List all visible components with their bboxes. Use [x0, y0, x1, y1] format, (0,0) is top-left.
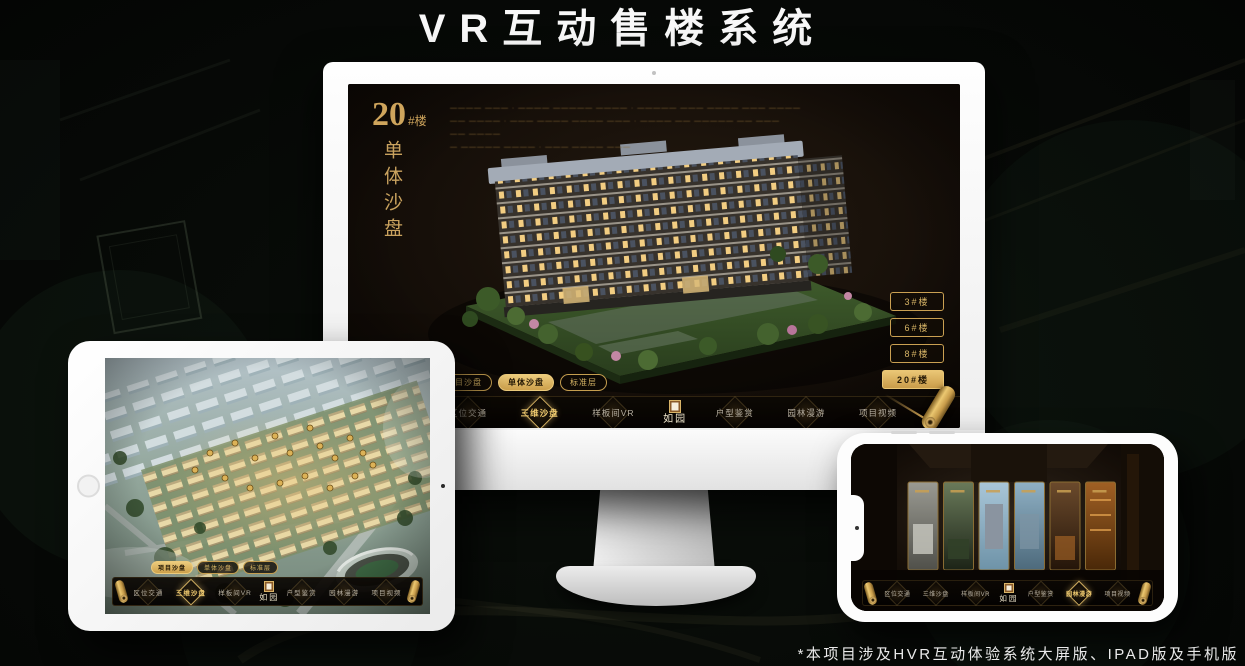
sandbox-tab[interactable]: 单体沙盘: [498, 374, 554, 391]
nav-item-label: 户型鉴赏: [1028, 592, 1054, 598]
building-number: 20: [372, 96, 406, 133]
floor-button[interactable]: 3#楼: [890, 292, 944, 311]
nav-item[interactable]: 园林漫游: [1063, 587, 1095, 600]
nav-item-label: 三维沙盘: [521, 408, 559, 418]
nav-item-label: 三维沙盘: [176, 590, 206, 597]
nav-item[interactable]: 户型鉴赏: [1025, 587, 1057, 600]
scroll-handle-icon[interactable]: [1137, 581, 1152, 606]
building-headline: 20#楼 单体沙盘: [372, 96, 427, 270]
nav-item[interactable]: 户型鉴赏: [282, 584, 322, 600]
brand-logo: 如园: [663, 400, 687, 425]
camera-dot-icon: [441, 484, 445, 488]
nav-item[interactable]: 区位交通: [128, 584, 168, 600]
nav-item[interactable]: 项目视频: [366, 584, 406, 600]
floor-button[interactable]: 6#楼: [890, 318, 944, 337]
description-line: ———— ——— · ———— ————— ———— · ————— ——— —…: [450, 102, 870, 115]
nav-item-label: 园林漫游: [1066, 592, 1092, 598]
floor-button[interactable]: 8#楼: [890, 344, 944, 363]
sandbox-tab[interactable]: 标准层: [560, 374, 607, 391]
floor-button-group: 3#楼6#楼8#楼20#楼: [882, 292, 944, 389]
main-nav-tablet: 区位交通三维沙盘样板间VR如园户型鉴赏园林漫游项目视频: [112, 577, 423, 606]
nav-item[interactable]: 样板间VR: [958, 587, 993, 600]
volume-button[interactable]: [929, 431, 955, 434]
scroll-handle-icon[interactable]: [114, 579, 129, 604]
nav-item-label: 园林漫游: [787, 408, 825, 418]
phone-device: 区位交通三维沙盘样板间VR如园户型鉴赏园林漫游项目视频: [837, 433, 1178, 622]
sandbox-mode-tabs-tablet: 项目沙盘单体沙盘标准层: [151, 561, 278, 574]
nav-item[interactable]: 三维沙盘: [516, 404, 564, 422]
brand-logo-label: 如园: [259, 594, 279, 602]
nav-item[interactable]: 园林漫游: [324, 584, 364, 600]
nav-item[interactable]: 园林漫游: [782, 404, 830, 422]
nav-item-label: 样板间VR: [218, 590, 252, 597]
description-line: —— ———— · ——— ———— ———— ——— · ———— —— ——…: [450, 115, 870, 128]
nav-item-label: 户型鉴赏: [287, 590, 317, 597]
brand-logo-label: 如园: [663, 415, 687, 425]
nav-item-label: 样板间VR: [961, 592, 990, 598]
floor-button[interactable]: 20#楼: [882, 370, 944, 389]
brand-seal-icon: [669, 400, 682, 413]
aerial-masterplan-scene: [105, 358, 430, 614]
nav-item-label: 区位交通: [884, 592, 910, 598]
nav-item-label: 项目视频: [1105, 592, 1131, 598]
nav-item[interactable]: 三维沙盘: [171, 584, 211, 600]
camera-dot-icon: [652, 71, 656, 75]
nav-item[interactable]: 三维沙盘: [920, 587, 952, 600]
nav-item-label: 项目视频: [371, 590, 401, 597]
nav-item[interactable]: 项目视频: [1102, 587, 1134, 600]
scroll-handle-icon[interactable]: [863, 581, 878, 606]
building-number-suffix: #楼: [408, 114, 427, 128]
home-button[interactable]: [77, 475, 100, 498]
stage: VR互动售楼系统: [0, 0, 1245, 666]
camera-dot-icon: [855, 526, 859, 530]
nav-item[interactable]: 户型鉴赏: [711, 404, 759, 422]
notch: [851, 495, 864, 561]
sandbox-tab[interactable]: 标准层: [243, 561, 278, 574]
monitor-stand: [593, 488, 715, 572]
nav-item[interactable]: 样板间VR: [213, 584, 257, 600]
sandbox-tab[interactable]: 单体沙盘: [197, 561, 239, 574]
brand-logo-label: 如园: [999, 595, 1018, 603]
brand-seal-icon: [264, 581, 274, 591]
nav-item[interactable]: 区位交通: [881, 587, 913, 600]
nav-item-label: 三维沙盘: [923, 592, 949, 598]
nav-item-label: 园林漫游: [329, 590, 359, 597]
brand-seal-icon: [1004, 583, 1014, 593]
description-line: —— ————: [450, 128, 870, 141]
page-title: VR互动售楼系统: [0, 0, 1245, 56]
tablet-device: 项目沙盘单体沙盘标准层 区位交通三维沙盘样板间VR如园户型鉴赏园林漫游项目视频: [68, 341, 455, 631]
footnote-caption: *本项目涉及HVR互动体验系统大屏版、IPAD版及手机版: [798, 643, 1239, 664]
nav-item-label: 样板间VR: [592, 408, 634, 418]
sandbox-tab[interactable]: 项目沙盘: [151, 561, 193, 574]
nav-item[interactable]: 项目视频: [854, 404, 902, 422]
nav-item-label: 户型鉴赏: [716, 408, 754, 418]
phone-screen: 区位交通三维沙盘样板间VR如园户型鉴赏园林漫游项目视频: [851, 444, 1164, 611]
nav-item[interactable]: 样板间VR: [587, 404, 639, 422]
brand-logo: 如园: [999, 583, 1018, 602]
building-description: ———— ——— · ———— ————— ———— · ————— ——— —…: [450, 102, 870, 154]
main-nav-phone: 区位交通三维沙盘样板间VR如园户型鉴赏园林漫游项目视频: [862, 580, 1153, 606]
description-line: — ————— ———— · ——— ———— ———: [450, 141, 870, 154]
sandbox-mode-tabs: 项目沙盘单体沙盘标准层: [436, 374, 607, 391]
nav-item-label: 项目视频: [859, 408, 897, 418]
headline-vertical-text: 单体沙盘: [378, 140, 405, 270]
volume-button[interactable]: [891, 431, 917, 434]
brand-logo: 如园: [259, 581, 279, 601]
nav-item-label: 区位交通: [133, 590, 163, 597]
tablet-screen: 项目沙盘单体沙盘标准层 区位交通三维沙盘样板间VR如园户型鉴赏园林漫游项目视频: [105, 358, 430, 614]
scroll-handle-icon[interactable]: [406, 579, 421, 604]
